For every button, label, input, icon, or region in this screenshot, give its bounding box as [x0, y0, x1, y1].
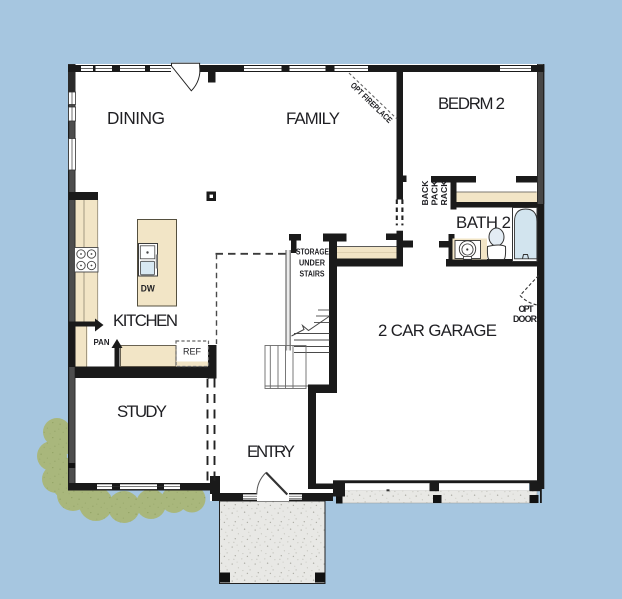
svg-text:ENTRY: ENTRY [247, 442, 295, 461]
svg-text:STORAGE: STORAGE [296, 247, 329, 257]
svg-text:FAMILY: FAMILY [286, 109, 340, 128]
svg-text:PACK: PACK [431, 180, 440, 205]
svg-text:REF: REF [183, 347, 202, 357]
svg-text:UNDER: UNDER [299, 258, 326, 268]
svg-text:BEDRM 2: BEDRM 2 [438, 94, 505, 113]
svg-text:OPT: OPT [519, 304, 535, 314]
svg-text:PAN: PAN [94, 337, 110, 347]
svg-text:DW: DW [141, 284, 156, 294]
svg-text:STUDY: STUDY [117, 402, 167, 421]
svg-text:STAIRS: STAIRS [300, 269, 325, 279]
svg-text:KITCHEN: KITCHEN [113, 311, 178, 330]
svg-text:DINING: DINING [107, 108, 165, 128]
svg-text:RACK: RACK [440, 180, 449, 205]
svg-text:BACK: BACK [421, 180, 430, 205]
svg-text:BATH 2: BATH 2 [456, 213, 511, 232]
svg-text:DOOR: DOOR [513, 314, 538, 324]
svg-text:2 CAR GARAGE: 2 CAR GARAGE [378, 321, 497, 340]
